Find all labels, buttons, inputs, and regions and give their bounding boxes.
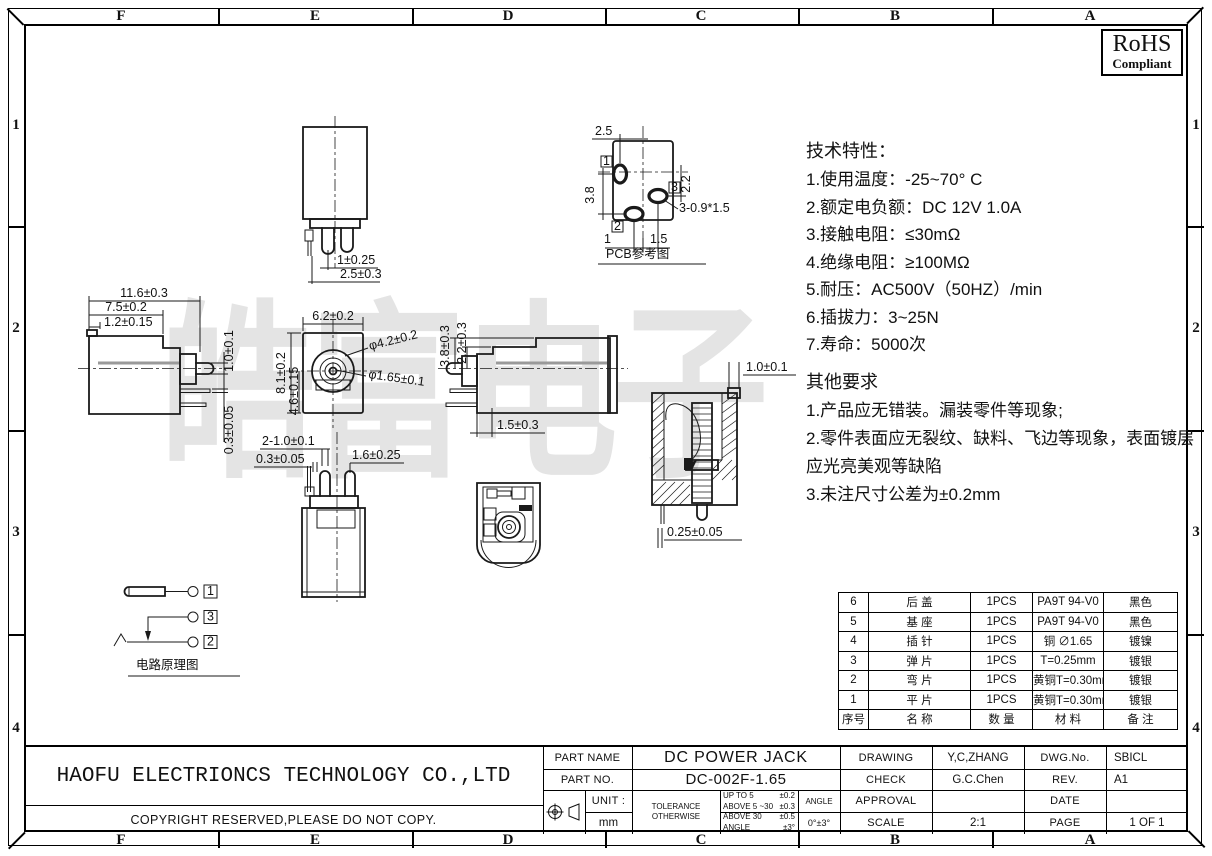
bom-cell: 基 座	[869, 612, 971, 632]
pad-marker: 2	[614, 219, 621, 233]
other-item: 2.零件表面应无裂纹、缺料、飞边等现象，表面镀层应光亮美观等缺陷	[806, 425, 1204, 481]
bom-cell: 5	[839, 612, 869, 632]
bom-cell: 镀银	[1104, 651, 1178, 671]
title-block: HAOFU ELECTRIONCS TECHNOLOGY CO.,LTD COP…	[24, 745, 1188, 832]
bom-cell: 1PCS	[971, 612, 1033, 632]
bom-cell: 后 盖	[869, 593, 971, 613]
part-name-label: PART NAME	[543, 747, 632, 769]
dim-label: φ1.65±0.1	[368, 367, 426, 389]
part-name-value: DC POWER JACK	[632, 747, 840, 769]
technical-notes: 技术特性： 1.使用温度：-25~70° C 2.额定电负额：DC 12V 1.…	[806, 136, 1204, 509]
dwg-no-value: SBICL	[1106, 747, 1188, 769]
drawing-by-value: Y,C,ZHANG	[932, 747, 1024, 769]
tech-item: 1.使用温度：-25~70° C	[806, 166, 1204, 194]
dim-label: 2.2	[679, 175, 693, 192]
bom-cell: 平 片	[869, 690, 971, 710]
tol-range: ABOVE 5 ~30	[723, 802, 773, 813]
dim-label: 2.5	[595, 124, 612, 138]
page-label: PAGE	[1024, 812, 1106, 834]
dim-label: 2-1.0±0.1	[262, 434, 315, 448]
bom-cell: 4	[839, 632, 869, 652]
bom-header-row: 序号名 称数 量材 料备 注	[839, 710, 1178, 730]
tech-item: 2.额定电负额：DC 12V 1.0A	[806, 194, 1204, 222]
dim-label: 2.5±0.3	[340, 267, 382, 281]
tol-value: ±0.5	[779, 812, 795, 823]
other-title: 其他要求	[806, 367, 1204, 397]
tolerance-label-1: TOLERANCE	[652, 802, 701, 813]
dim-label: 1.0±0.1	[746, 360, 788, 374]
dim-label: 1.5±0.3	[497, 418, 539, 432]
tolerance-values-cell: UP TO 5±0.2 ABOVE 5 ~30±0.3 ABOVE 30±0.5…	[720, 790, 798, 834]
check-by-value: G.C.Chen	[932, 769, 1024, 790]
tol-value: ±3°	[783, 823, 795, 834]
rev-label: REV.	[1024, 769, 1106, 790]
tech-item: 4.绝缘电阻：≥100MΩ	[806, 249, 1204, 277]
hole-note: 3-0.9*1.5	[679, 201, 730, 215]
approval-value	[932, 790, 1024, 812]
company-name: HAOFU ELECTRIONCS TECHNOLOGY CO.,LTD	[57, 765, 511, 788]
bom-cell: 黑色	[1104, 593, 1178, 613]
bom-row: 5基 座1PCSPA9T 94-V0黑色	[839, 612, 1178, 632]
bom-cell: 铜 ∅1.65	[1033, 632, 1104, 652]
schematic-pin-number: 1	[207, 584, 214, 598]
dim-label: φ4.2±0.2	[367, 327, 419, 353]
angle-label: ANGLE	[798, 790, 840, 812]
section-view: 1.0±0.1 0.25±0.05	[652, 360, 796, 548]
side-view-left: 11.6±0.3 7.5±0.2 1.2±0.15 1.0±0.1 0.3±0.…	[78, 286, 236, 454]
date-label: DATE	[1024, 790, 1106, 812]
bom-cell: 弹 片	[869, 651, 971, 671]
bom-cell: 插 针	[869, 632, 971, 652]
rear-view	[477, 483, 540, 567]
dim-label: 11.6±0.3	[120, 286, 168, 300]
dim-label: 0.3±0.05	[222, 406, 236, 455]
tolerance-label-2: OTHERWISE	[652, 812, 700, 823]
copyright-text: COPYRIGHT RESERVED,PLEASE DO NOT COPY.	[130, 813, 436, 827]
bom-cell: PA9T 94-V0	[1033, 612, 1104, 632]
bom-cell: 1PCS	[971, 593, 1033, 613]
bom-cell: 1PCS	[971, 671, 1033, 691]
tolerance-row: UP TO 5±0.2	[720, 791, 798, 802]
dim-label: 0.25±0.05	[667, 525, 723, 539]
dim-label: 2.2±0.3	[455, 322, 469, 364]
rohs-subtitle: Compliant	[1103, 57, 1181, 71]
bom-cell: 1PCS	[971, 632, 1033, 652]
bom-row: 4插 针1PCS铜 ∅1.65镀镍	[839, 632, 1178, 652]
rohs-title: RoHS	[1103, 31, 1181, 57]
other-item: 3.未注尺寸公差为±0.2mm	[806, 481, 1204, 509]
bom-header-cell: 名 称	[869, 710, 971, 730]
company-name-cell: HAOFU ELECTRIONCS TECHNOLOGY CO.,LTD	[24, 747, 543, 805]
dim-label: 6.2±0.2	[312, 309, 354, 323]
bom-cell: 3	[839, 651, 869, 671]
tech-item: 6.插拔力：3~25N	[806, 304, 1204, 332]
check-label: CHECK	[840, 769, 932, 790]
top-view: 1±0.25 2.5±0.3	[303, 116, 382, 284]
bom-header-cell: 材 料	[1033, 710, 1104, 730]
dim-label: 3.8±0.3	[438, 325, 452, 367]
bom-cell: 镀银	[1104, 671, 1178, 691]
dim-label: 7.5±0.2	[105, 300, 147, 314]
tech-item: 5.耐压：AC500V（50HZ）/min	[806, 276, 1204, 304]
bom-cell: 2	[839, 671, 869, 691]
page-value: 1 OF 1	[1106, 812, 1188, 834]
pcb-view-label: PCB参考图	[606, 246, 669, 261]
scale-label: SCALE	[840, 812, 932, 834]
bom-row: 1平 片1PCS黄铜T=0.30mm镀银	[839, 690, 1178, 710]
schematic-pin-number: 2	[207, 635, 214, 649]
side-view-right: 3.8±0.3 2.2±0.3 1.5±0.3	[438, 322, 628, 437]
tech-title: 技术特性：	[806, 136, 1204, 166]
other-item: 1.产品应无错装。漏装零件等现象;	[806, 397, 1204, 425]
tech-item: 3.接触电阻：≤30mΩ	[806, 221, 1204, 249]
bom-header-cell: 数 量	[971, 710, 1033, 730]
projection-symbol-cell	[543, 790, 585, 834]
angle-tolerance-value: 0°±3°	[798, 812, 840, 834]
tol-range: ABOVE 30	[723, 812, 762, 823]
bom-cell: 1	[839, 690, 869, 710]
dim-label: 1.6±0.25	[352, 448, 401, 462]
pad-marker: 1	[603, 154, 610, 168]
bom-row: 6后 盖1PCSPA9T 94-V0黑色	[839, 593, 1178, 613]
bom-cell: 镀镍	[1104, 632, 1178, 652]
dim-label: 4.6±0.15	[287, 367, 301, 416]
dwg-no-label: DWG.No.	[1024, 747, 1106, 769]
bom-row: 3弹 片1PCST=0.25mm镀银	[839, 651, 1178, 671]
tolerance-row: ABOVE 5 ~30±0.3	[720, 802, 798, 813]
bom-cell: 黑色	[1104, 612, 1178, 632]
tech-item: 7.寿命：5000次	[806, 331, 1204, 359]
dim-label: 0.3±0.05	[256, 452, 305, 466]
bom-cell: 弯 片	[869, 671, 971, 691]
pcb-reference-view: 1 3 2 2.5 3.8 2.2 1 1.5 3-0.9*1.5 PCB参考图	[583, 124, 730, 264]
front-view: 6.2±0.2 8.1±0.2 4.6±0.15 φ4.2±0.2 φ1.65±…	[274, 309, 426, 428]
date-value	[1106, 790, 1188, 812]
unit-label: UNIT :	[585, 790, 632, 812]
tol-range: ANGLE	[723, 823, 750, 834]
tolerance-row: ANGLE±3°	[720, 823, 798, 834]
approval-label: APPROVAL	[840, 790, 932, 812]
part-no-value: DC-002F-1.65	[632, 769, 840, 790]
dim-label: 3.8	[583, 186, 597, 203]
scale-value: 2:1	[932, 812, 1024, 834]
bom-row: 2弯 片1PCS黄铜T=0.30mm镀银	[839, 671, 1178, 691]
unit-value: mm	[585, 812, 632, 834]
bom-cell: 6	[839, 593, 869, 613]
rev-value: A1	[1106, 769, 1188, 790]
dim-label: 8.1±0.2	[274, 352, 288, 394]
bom-table: 6后 盖1PCSPA9T 94-V0黑色 5基 座1PCSPA9T 94-V0黑…	[838, 592, 1178, 730]
bom-header-cell: 备 注	[1104, 710, 1178, 730]
tol-value: ±0.3	[779, 802, 795, 813]
schematic-label: 电路原理图	[136, 657, 199, 672]
dim-label: 1.5	[650, 232, 667, 246]
bom-cell: T=0.25mm	[1033, 651, 1104, 671]
bom-cell: 黄铜T=0.30mm	[1033, 671, 1104, 691]
tol-value: ±0.2	[779, 791, 795, 802]
bom-cell: PA9T 94-V0	[1033, 593, 1104, 613]
drawing-sheet: 皓富电子 F E D C B A F E D C B A 1 2 3 4 1 2…	[0, 0, 1212, 856]
dim-label: 1.2±0.15	[104, 315, 153, 329]
third-angle-projection-icon	[546, 801, 582, 823]
drawing-label: DRAWING	[840, 747, 932, 769]
rohs-badge: RoHS Compliant	[1101, 29, 1183, 76]
part-no-label: PART NO.	[543, 769, 632, 790]
copyright-cell: COPYRIGHT RESERVED,PLEASE DO NOT COPY.	[24, 805, 543, 834]
bom-cell: 1PCS	[971, 690, 1033, 710]
circuit-schematic: 1 3 2 电路原理图	[114, 584, 240, 676]
tolerance-row: ABOVE 30±0.5	[720, 812, 798, 823]
dim-label: 1±0.25	[337, 253, 375, 267]
bom-cell: 1PCS	[971, 651, 1033, 671]
bom-header-cell: 序号	[839, 710, 869, 730]
bottom-view: 2-1.0±0.1 0.3±0.05 1.6±0.25	[254, 432, 404, 602]
pad-marker: 3	[671, 180, 678, 194]
dim-label: 1	[604, 232, 611, 246]
tol-range: UP TO 5	[723, 791, 754, 802]
bom-cell: 黄铜T=0.30mm	[1033, 690, 1104, 710]
schematic-pin-number: 3	[207, 610, 214, 624]
bom-cell: 镀银	[1104, 690, 1178, 710]
tolerance-label-cell: TOLERANCE OTHERWISE	[632, 790, 720, 834]
dim-label: 1.0±0.1	[222, 330, 236, 372]
